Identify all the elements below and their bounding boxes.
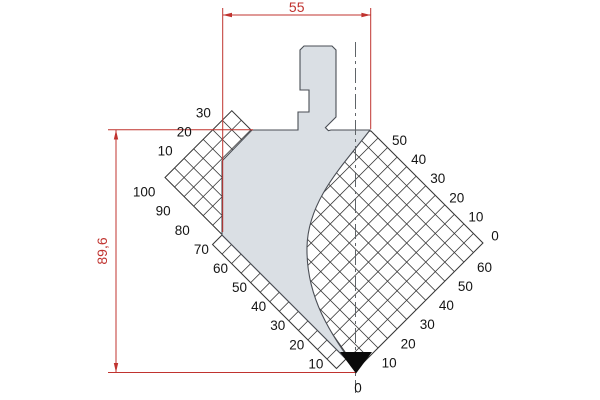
scale-label-right_lower: 20 <box>401 336 416 351</box>
scale-label-left_edge: 50 <box>232 280 247 295</box>
scale-label-left_upper: 20 <box>177 124 192 139</box>
punch-drawing-svg: 55 89,6 10090807060504030201030201050403… <box>0 0 600 400</box>
scale-label-left_edge: 40 <box>251 299 266 314</box>
scale-label-right_lower: 30 <box>420 317 435 332</box>
scale-label-left_edge: 10 <box>308 356 323 371</box>
scale-label-left_edge: 60 <box>213 261 228 276</box>
scale-label-right_upper: 20 <box>449 190 464 205</box>
scale-label-left_edge: 30 <box>270 318 285 333</box>
scale-label-right_upper: 50 <box>392 133 407 148</box>
scale-label-right_upper: 10 <box>468 209 483 224</box>
origin-zero-label: 0 <box>354 381 362 396</box>
scale-label-right_lower: 10 <box>382 355 397 370</box>
scale-label-right_lower: 50 <box>458 279 473 294</box>
technical-drawing-canvas: 55 89,6 10090807060504030201030201050403… <box>0 0 600 400</box>
scale-label-left_edge: 70 <box>194 242 209 257</box>
scale-label-right_upper: 30 <box>430 171 445 186</box>
height-dimension-label: 89,6 <box>94 237 110 264</box>
scale-label-left_edge: 20 <box>289 337 304 352</box>
arrowhead-up-icon <box>114 130 118 140</box>
width-dimension-label: 55 <box>289 0 305 15</box>
arrowhead-right-icon <box>361 13 370 17</box>
arrowhead-left-icon <box>223 13 232 17</box>
scale-label-left_edge: 80 <box>175 223 190 238</box>
scale-label-left_upper: 30 <box>196 105 211 120</box>
scale-label-left_edge: 90 <box>156 204 171 219</box>
scale-label-right_lower: 40 <box>439 298 454 313</box>
scale-label-right_lower: 60 <box>477 260 492 275</box>
scale-label-right_upper: 40 <box>411 152 426 167</box>
punch-tip <box>340 352 372 374</box>
scale-label-right_upper: 0 <box>491 229 499 244</box>
arrowhead-down-icon <box>114 363 118 373</box>
scale-label-left_upper: 10 <box>158 144 173 159</box>
scale-label-left_edge: 100 <box>133 185 156 200</box>
